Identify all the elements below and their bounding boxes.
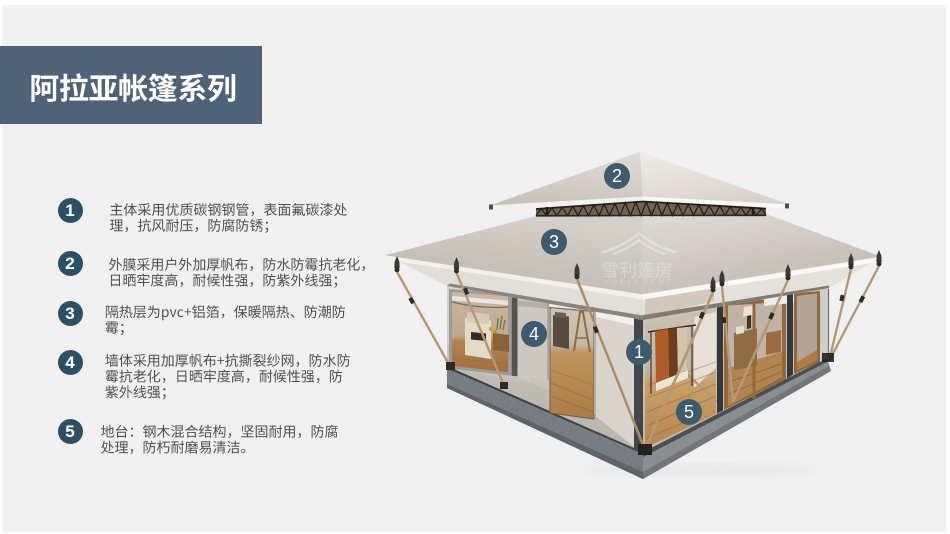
svg-text:XUELI TENT: XUELI TENT [604,278,674,287]
